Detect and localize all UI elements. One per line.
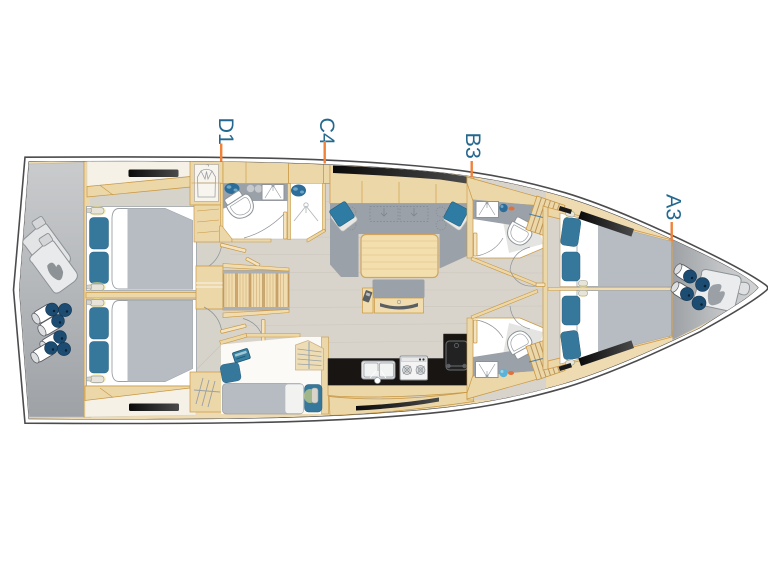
svg-text:B3: B3 [461,133,485,159]
svg-text:C4: C4 [315,118,339,146]
svg-text:A3: A3 [662,194,686,220]
svg-text:D1: D1 [214,118,238,145]
